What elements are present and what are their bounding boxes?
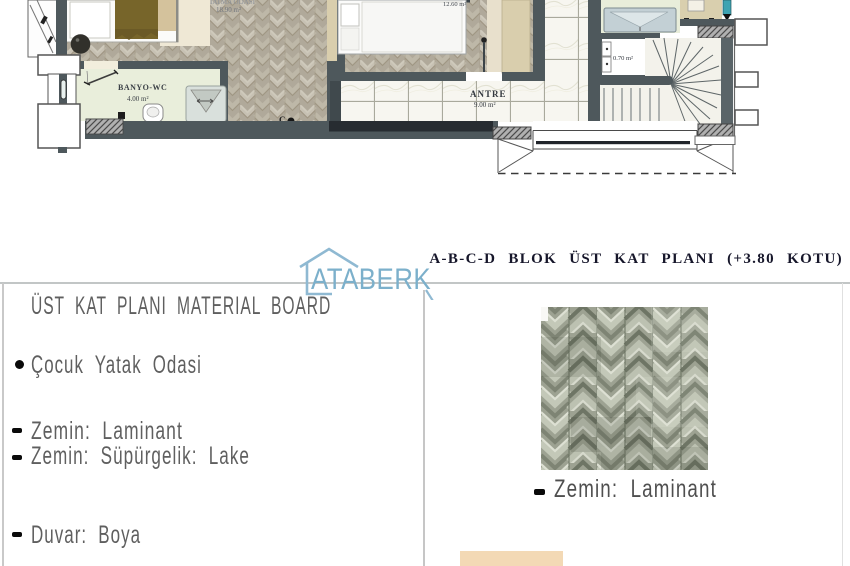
svg-text:ANTRE: ANTRE: [470, 89, 507, 99]
svg-text:0.70 m²: 0.70 m²: [613, 55, 633, 62]
svg-text:BANYO-WC: BANYO-WC: [118, 83, 167, 92]
svg-text:4.00 m²: 4.00 m²: [127, 95, 149, 103]
svg-text:9.00 m²: 9.00 m²: [474, 101, 496, 109]
svg-text:18.90 m²: 18.90 m²: [216, 6, 241, 14]
svg-text:12.60 m²: 12.60 m²: [443, 1, 466, 8]
